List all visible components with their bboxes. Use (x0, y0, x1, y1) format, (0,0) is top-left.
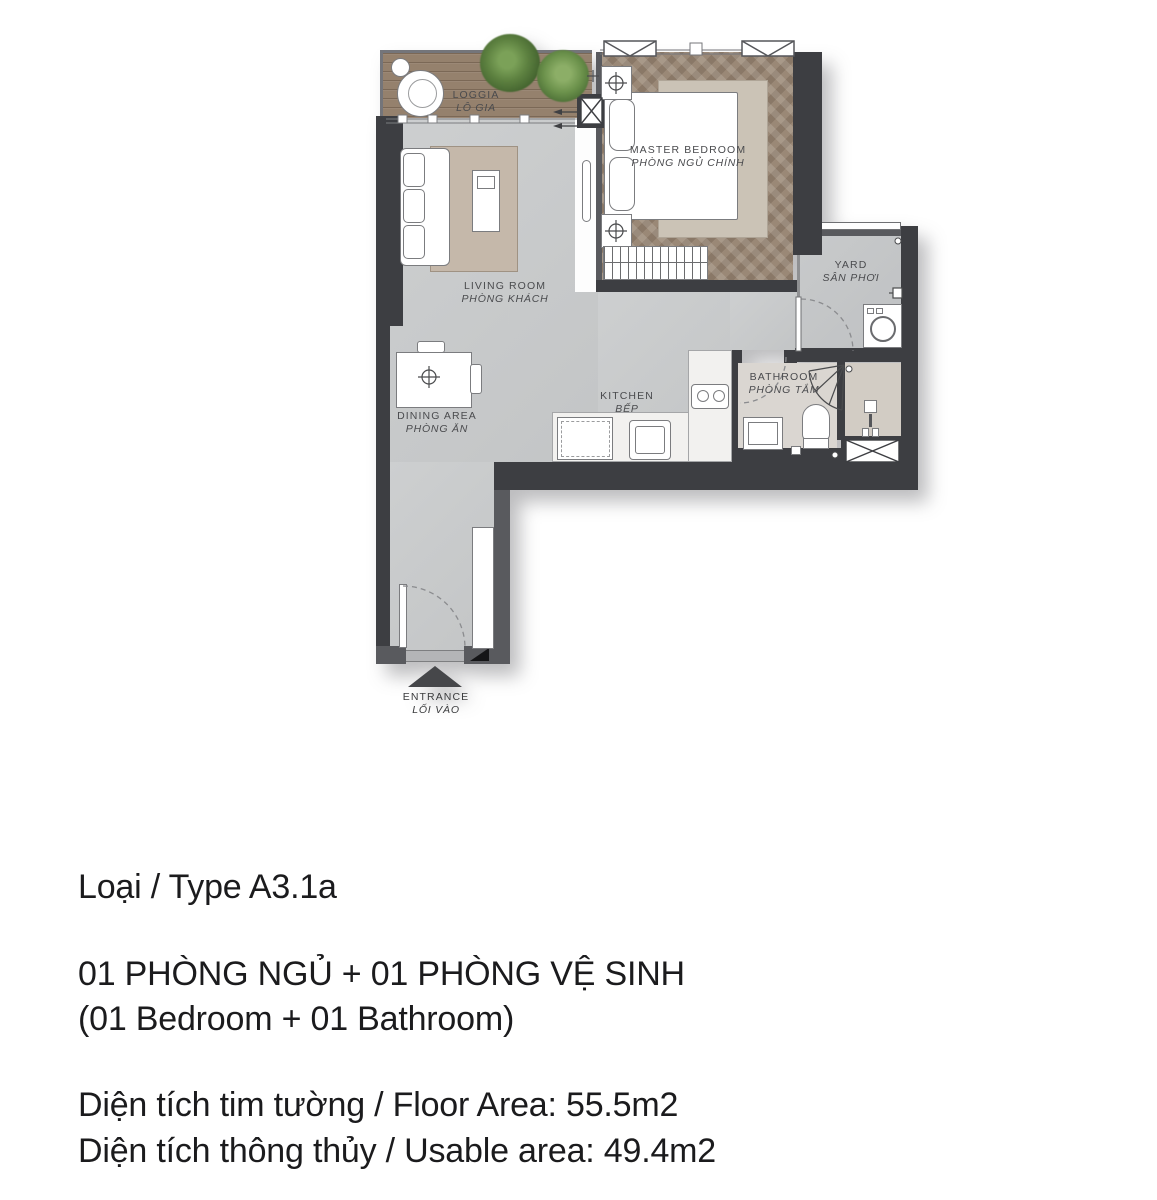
room-name-vi: PHÒNG KHÁCH (462, 293, 549, 306)
unit-area-block: Diện tích tim tường / Floor Area: 55.5m2… (78, 1082, 716, 1174)
room-name: LOGGIA (453, 89, 500, 101)
plan-annotations: LOGGIA LÔ GIA MASTER BEDROOM PHÒNG NGỦ C… (0, 0, 1157, 780)
room-name-vi: SÂN PHƠI (823, 272, 880, 285)
room-name-vi: PHÒNG NGỦ CHÍNH (630, 157, 746, 170)
floor-drain-icon (832, 452, 838, 458)
faucet-icon (587, 70, 599, 82)
usable-area-line: Diện tích thông thủy / Usable area: 49.4… (78, 1128, 716, 1174)
room-label-yard: YARD SÂN PHƠI (823, 259, 880, 285)
casement-window-icon (742, 41, 794, 56)
unit-type-line: Loại / Type A3.1a (78, 868, 337, 907)
entrance-label: ENTRANCE LỐI VÀO (403, 691, 470, 717)
faucet-icon (889, 288, 902, 298)
room-name: DINING AREA (397, 410, 477, 422)
room-label-master-bedroom: MASTER BEDROOM PHÒNG NGỦ CHÍNH (630, 144, 746, 170)
ceiling-light-icon (418, 366, 440, 388)
door-swing-arc (801, 299, 853, 351)
room-name-vi: PHÒNG TẮM (749, 384, 820, 397)
sliding-door-track (386, 115, 575, 123)
shaft-icon (581, 98, 602, 124)
room-name: MASTER BEDROOM (630, 144, 746, 156)
casement-window-icon (604, 41, 656, 56)
floor-plan-page: LOGGIA LÔ GIA MASTER BEDROOM PHÒNG NGỦ C… (0, 0, 1157, 1200)
floor-area-line: Diện tích tim tường / Floor Area: 55.5m2 (78, 1082, 716, 1128)
room-name: ENTRANCE (403, 691, 470, 703)
plan-symbols (0, 0, 1157, 780)
door-swing-arc (403, 586, 465, 648)
room-name-vi: LÔ GIA (453, 102, 500, 115)
room-name-vi: LỐI VÀO (403, 704, 470, 717)
room-name: LIVING ROOM (464, 280, 546, 292)
room-label-living-room: LIVING ROOM PHÒNG KHÁCH (462, 280, 549, 306)
room-name: BATHROOM (750, 371, 819, 383)
room-name-vi: BẾP (600, 403, 654, 416)
unit-layout-vi: 01 PHÒNG NGỦ + 01 PHÒNG VỆ SINH (78, 952, 685, 997)
room-name: YARD (835, 259, 868, 271)
ceiling-light-icon (605, 220, 627, 242)
room-name: KITCHEN (600, 390, 654, 402)
shaft-icon (846, 440, 899, 462)
room-label-loggia: LOGGIA LÔ GIA (453, 89, 500, 115)
room-name-vi: PHÒNG ĂN (397, 423, 477, 436)
ceiling-light-icon (605, 72, 627, 94)
unit-layout-en: (01 Bedroom + 01 Bathroom) (78, 997, 685, 1042)
floor-drain-icon (846, 366, 852, 372)
room-label-dining-area: DINING AREA PHÒNG ĂN (397, 410, 477, 436)
room-label-kitchen: KITCHEN BẾP (600, 390, 654, 416)
door-leaf (796, 297, 801, 351)
vent-icon (895, 238, 901, 244)
room-label-bathroom: BATHROOM PHÒNG TẮM (749, 371, 820, 397)
unit-layout-block: 01 PHÒNG NGỦ + 01 PHÒNG VỆ SINH (01 Bedr… (78, 952, 685, 1042)
